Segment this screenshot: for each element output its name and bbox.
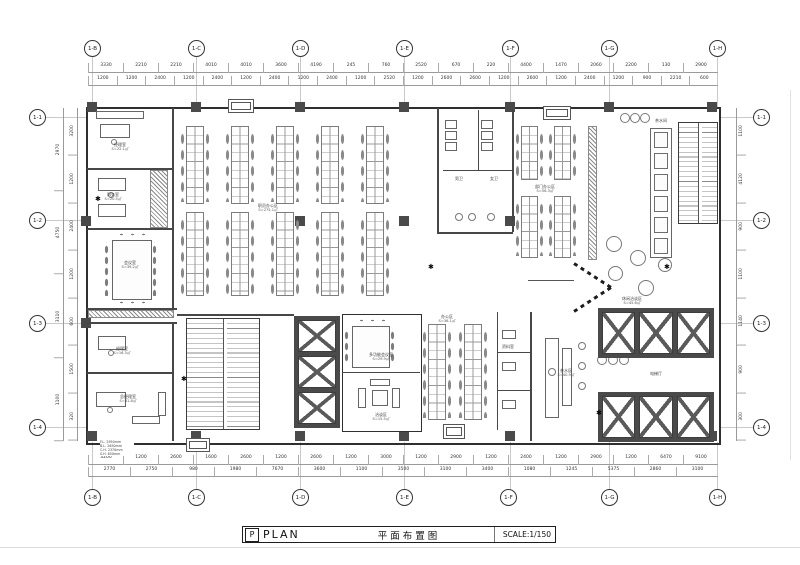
grid-line <box>510 442 511 489</box>
dim-value: 2520 <box>403 63 438 73</box>
dim-value: 2900 <box>578 455 613 465</box>
structural-column <box>505 216 515 226</box>
structural-column <box>505 102 515 112</box>
elevator-shaft <box>677 312 710 354</box>
bar-sink <box>548 368 556 376</box>
office-desk <box>100 124 130 138</box>
office-desk <box>502 400 516 409</box>
dim-value: 1200 <box>403 76 432 86</box>
structural-column <box>295 431 305 441</box>
dim-value: 2200 <box>613 63 648 73</box>
dim-value: 3500 <box>382 467 424 477</box>
dim-value: 600 <box>689 76 718 86</box>
dim-value: 2400 <box>145 76 174 86</box>
room-label-talk: 洽谈区S=15.5㎡ <box>373 412 390 422</box>
elevator-bank-right-top <box>598 308 714 358</box>
dim-chain-top-1: 3330221022104010401036004190245760252067… <box>88 63 718 73</box>
elevator-shaft <box>298 320 336 352</box>
wc-stall <box>445 142 457 151</box>
office-cabinet <box>96 111 144 119</box>
dim-value: 3100 <box>424 467 466 477</box>
room-name: 女卫 <box>490 176 498 181</box>
room-label-pantry: 茶水间 <box>655 118 667 123</box>
structural-column <box>87 431 97 441</box>
grid-bubble-bottom-g: 1-G <box>601 489 618 506</box>
meeting-chairs <box>354 318 386 323</box>
workstation-bench <box>321 126 339 204</box>
wc-sink <box>487 213 495 221</box>
dim-value: 900 <box>632 76 661 86</box>
room-area: S=40.9㎡ <box>558 373 575 378</box>
lounge-table <box>372 390 388 406</box>
grid-bubble-bottom-b: 1-B <box>84 489 101 506</box>
wc-stall <box>481 120 493 129</box>
workstation-bench <box>231 212 249 296</box>
wall-segment <box>497 352 530 353</box>
elevator-bank-right-bottom <box>598 392 714 442</box>
grid-line <box>92 442 93 489</box>
dim-chain-bottom-2: 2770275098019807670360011003500310034001… <box>88 467 718 477</box>
grid-bubble-right-1: 1-1 <box>753 109 770 126</box>
floor-plan-sheet: 1-B 1-C 1-D 1-E 1-F 1-G 1-H 1-B 1-C 1-D … <box>0 0 800 565</box>
workstation-bench <box>231 126 249 204</box>
grid-bubble-top-f: 1-F <box>502 40 519 57</box>
grid-line <box>46 117 86 118</box>
dim-value: 1200 <box>604 76 633 86</box>
room-area: S=20.5㎡ <box>105 197 122 202</box>
title-cn: 平面布置图 <box>378 528 441 542</box>
plant-icon: ✱ <box>596 410 602 417</box>
meeting-chairs <box>344 328 349 364</box>
dim-value: 2600 <box>432 76 461 86</box>
lounge-sofa <box>358 388 366 408</box>
dim-value: 2970 <box>54 108 63 191</box>
dim-value: 1200 <box>403 455 438 465</box>
dim-value: 900 <box>737 203 746 251</box>
bar-bench <box>588 126 597 260</box>
pantry-unit <box>654 153 668 169</box>
workstation-bench <box>554 126 571 180</box>
workstation-bench <box>428 324 446 420</box>
elevator-shaft <box>602 312 635 354</box>
dim-value: 2600 <box>158 455 193 465</box>
dim-value: 7670 <box>256 467 298 477</box>
wall-segment <box>437 232 513 234</box>
dim-value: 2600 <box>518 76 547 86</box>
dim-value: 2520 <box>374 76 403 86</box>
grid-line <box>404 442 405 489</box>
column-casing <box>228 99 254 113</box>
round-table <box>630 113 640 123</box>
dim-value: 2400 <box>203 76 232 86</box>
dim-chain-left-inner: 32001200240012006001500320 <box>68 108 78 441</box>
elevator-shaft <box>677 396 710 438</box>
room-name: 资料室 <box>502 344 514 349</box>
dim-value: 2400 <box>575 76 604 86</box>
office-sofa <box>158 392 166 416</box>
pantry-unit <box>654 217 668 233</box>
dim-value: 4750 <box>54 191 63 274</box>
dim-value: 1200 <box>288 76 317 86</box>
grid-bubble-left-2: 1-2 <box>29 212 46 229</box>
dim-value: 1200 <box>231 76 260 86</box>
sheet-edge <box>790 90 791 460</box>
dim-value: 1100 <box>737 251 746 299</box>
room-label-lounge: 休闲洽谈区S=45.6㎡ <box>622 296 642 306</box>
dim-value: 2400 <box>68 203 77 251</box>
dim-value: 4120 <box>737 156 746 204</box>
dim-value: 2060 <box>578 63 613 73</box>
dim-value: 130 <box>648 63 683 73</box>
round-table <box>630 250 646 266</box>
structural-column <box>399 102 409 112</box>
workstation-bench <box>554 196 571 258</box>
dim-value: 3600 <box>298 467 340 477</box>
dim-value: 4400 <box>508 63 543 73</box>
wc-sink <box>455 213 463 221</box>
dim-value: 220 <box>473 63 508 73</box>
round-table <box>606 236 622 252</box>
sheet-rule <box>0 547 800 548</box>
room-area: S=22.1㎡ <box>112 147 129 152</box>
dim-value: 1980 <box>214 467 256 477</box>
dim-value: 2750 <box>130 467 172 477</box>
pantry-unit <box>654 196 668 212</box>
room-area: S=16.3㎡ <box>114 351 131 356</box>
grid-bubble-top-h: 1-H <box>709 40 726 57</box>
office-desk <box>98 178 126 191</box>
elevator-shaft <box>298 392 336 424</box>
dim-value: 2400 <box>260 76 289 86</box>
wall-segment <box>172 108 174 308</box>
structural-column <box>707 102 717 112</box>
dim-value: 1200 <box>117 76 146 86</box>
pantry-unit <box>654 174 668 190</box>
dim-value: 980 <box>172 467 214 477</box>
grid-bubble-left-4: 1-4 <box>29 419 46 436</box>
structural-column <box>295 102 305 112</box>
grid-bubble-top-b: 1-B <box>84 40 101 57</box>
wc-stall <box>481 142 493 151</box>
dim-value: 1200 <box>346 76 375 86</box>
dim-value: 1100 <box>54 358 63 441</box>
room-name: 男卫 <box>455 176 463 181</box>
wall-segment <box>478 110 479 170</box>
workstation-bench <box>186 126 204 204</box>
room-label-open-office: 职员办公区S=275.1㎡ <box>258 203 278 213</box>
round-table <box>620 113 630 123</box>
office-desk <box>502 362 516 371</box>
office-desk <box>502 330 516 339</box>
elevator-bank-center <box>294 316 340 428</box>
dim-value: 9100 <box>683 455 718 465</box>
room-label-bar: 茶水区S=40.9㎡ <box>558 368 575 378</box>
dim-value: 900 <box>737 346 746 394</box>
room-label-office-mid: 办公区S=36.1㎡ <box>439 314 456 324</box>
dim-value: 1600 <box>193 455 228 465</box>
dim-value: 2400 <box>508 455 543 465</box>
plant-icon: ✱ <box>95 196 101 203</box>
dim-value: 1200 <box>489 76 518 86</box>
wall-segment <box>87 372 172 374</box>
round-table <box>640 113 650 123</box>
dim-value: 1200 <box>123 455 158 465</box>
elevator-shaft <box>602 396 635 438</box>
stair-core <box>186 318 260 430</box>
plant-icon: ✱ <box>181 376 187 383</box>
workstation-bench <box>276 212 294 296</box>
plan-notes: F.L. 2950mmB.L. 2650mmC.H. 2370mmS.H. 65… <box>100 440 134 456</box>
title-block: P PLAN 平面布置图 SCALE:1/150 <box>242 526 556 543</box>
dim-value: 3600 <box>263 63 298 73</box>
wall-segment <box>443 170 512 171</box>
room-label-lobby: 电梯厅 <box>650 371 662 376</box>
round-table <box>638 280 654 296</box>
room-label-meeting-mid: 多功能会议室S=29.9㎡ <box>369 352 393 362</box>
grid-bubble-left-1: 1-1 <box>29 109 46 126</box>
wc-sink <box>468 213 476 221</box>
conference-chairs <box>104 242 109 296</box>
dim-value: 2900 <box>438 455 473 465</box>
structural-column <box>399 216 409 226</box>
dim-value: 4010 <box>228 63 263 73</box>
room-label-conference: 会议室S=39.2㎡ <box>122 260 139 270</box>
dim-value: 1200 <box>543 455 578 465</box>
grid-bubble-bottom-c: 1-C <box>188 489 205 506</box>
dim-value: 1245 <box>550 467 592 477</box>
grid-bubble-top-d: 1-D <box>292 40 309 57</box>
dim-value: 2210 <box>123 63 158 73</box>
wall-segment <box>497 390 530 391</box>
elevator-shaft <box>639 312 672 354</box>
dim-value: 2900 <box>683 63 718 73</box>
room-label-wc-m: 男卫 <box>455 176 463 181</box>
wc-stall <box>481 131 493 140</box>
dim-value: 1200 <box>68 156 77 204</box>
dim-value: 2600 <box>460 76 489 86</box>
wc-stall <box>445 120 457 129</box>
pantry-equipment <box>650 128 672 258</box>
grid-bubble-bottom-h: 1-H <box>709 489 726 506</box>
title-mark: P <box>245 528 259 542</box>
dim-value: 2600 <box>298 455 333 465</box>
dim-value: 1100 <box>340 467 382 477</box>
column-casing <box>543 106 571 120</box>
dim-value: 2770 <box>88 467 130 477</box>
dim-value: 4190 <box>298 63 333 73</box>
wall-segment <box>497 312 498 430</box>
room-area: S=15.5㎡ <box>373 417 390 422</box>
workstation-bench <box>321 212 339 296</box>
plant-icon: ✱ <box>664 264 670 271</box>
dim-value: 1200 <box>68 251 77 299</box>
dim-chain-right: 1100412090011001140900300 <box>736 108 746 441</box>
wc-stall <box>445 131 457 140</box>
dim-value: 1200 <box>613 455 648 465</box>
dim-value: 1470 <box>543 63 578 73</box>
grid-bubble-bottom-d: 1-D <box>292 489 309 506</box>
hatched-partition <box>88 310 174 318</box>
title-scale: SCALE:1/150 <box>494 527 555 542</box>
structural-column <box>81 216 91 226</box>
room-area: S=29.9㎡ <box>369 357 393 362</box>
grid-line <box>609 442 610 489</box>
room-name: 电梯厅 <box>650 371 662 376</box>
room-area: S=31.8㎡ <box>120 399 137 404</box>
stair-core-topright <box>678 122 718 224</box>
grid-bubble-bottom-e: 1-E <box>396 489 413 506</box>
dim-chain-top-2: 1200120024001200240012002400120024001200… <box>88 76 718 86</box>
elevator-shaft <box>298 356 336 388</box>
workstation-bench <box>186 212 204 296</box>
dim-value: 1500 <box>68 346 77 394</box>
room-label-office-gm: 总经理室S=31.8㎡ <box>120 394 137 404</box>
plant-icon: ✱ <box>428 264 434 271</box>
dim-value: 1200 <box>88 76 117 86</box>
dim-chain-bottom-1: 3200120026001600260012002600120030001200… <box>88 455 718 465</box>
room-label-office-r: 部门办公区S=56.3㎡ <box>535 184 555 194</box>
grid-line <box>717 442 718 489</box>
grid-bubble-top-e: 1-E <box>396 40 413 57</box>
structural-column <box>604 102 614 112</box>
wall-segment <box>530 312 532 441</box>
lounge-sofa <box>392 388 400 408</box>
structural-column <box>399 431 409 441</box>
hatched-partition <box>150 170 168 228</box>
room-label-office-tl: 经理室S=22.1㎡ <box>112 142 129 152</box>
room-label-wc-f: 女卫 <box>490 176 498 181</box>
room-area: S=275.1㎡ <box>258 208 278 213</box>
wall-segment <box>437 108 439 232</box>
grid-bubble-right-4: 1-4 <box>753 419 770 436</box>
dim-value: 3330 <box>88 63 123 73</box>
lounge-sofa <box>370 379 390 386</box>
column-casing <box>443 424 465 439</box>
room-area: S=39.2㎡ <box>122 265 139 270</box>
room-label-office-bl: 经理室S=16.3㎡ <box>114 346 131 356</box>
office-sofa <box>132 416 160 424</box>
dim-value: 6470 <box>648 455 683 465</box>
round-table <box>608 266 623 281</box>
workstation-bench <box>521 196 538 258</box>
wall-segment <box>177 314 294 316</box>
conference-chairs <box>152 242 157 296</box>
room-area: S=56.3㎡ <box>535 189 555 194</box>
pantry-unit <box>654 132 668 148</box>
workstation-bench <box>464 324 482 420</box>
dim-value: 4010 <box>193 63 228 73</box>
dim-value: 2860 <box>634 467 676 477</box>
dim-value: 1200 <box>546 76 575 86</box>
grid-bubble-right-2: 1-2 <box>753 212 770 229</box>
dim-value: 1080 <box>508 467 550 477</box>
grid-bubble-top-g: 1-G <box>601 40 618 57</box>
grid-line <box>46 220 86 221</box>
dim-value: 320 <box>68 393 77 441</box>
office-chair <box>107 407 113 413</box>
workstation-bench <box>521 126 538 180</box>
room-name: 茶水间 <box>655 118 667 123</box>
dim-value: 670 <box>438 63 473 73</box>
structural-column <box>505 431 515 441</box>
conference-chairs <box>114 232 148 237</box>
dim-value: 3110 <box>54 275 63 358</box>
dim-value: 3400 <box>466 467 508 477</box>
grid-bubble-right-3: 1-3 <box>753 315 770 332</box>
dim-value: 245 <box>333 63 368 73</box>
title-en: PLAN <box>263 528 300 541</box>
dim-value: 1200 <box>333 455 368 465</box>
dim-value: 2400 <box>317 76 346 86</box>
workstation-bench <box>366 126 384 204</box>
grid-line <box>300 442 301 489</box>
dim-value: 2600 <box>228 455 263 465</box>
room-area: S=45.6㎡ <box>622 301 642 306</box>
dim-value: 3200 <box>68 108 77 156</box>
pantry-unit <box>654 238 668 254</box>
grid-bubble-top-c: 1-C <box>188 40 205 57</box>
grid-line <box>46 323 86 324</box>
dim-value: 1140 <box>737 298 746 346</box>
grid-bubble-bottom-f: 1-F <box>500 489 517 506</box>
wall-segment <box>512 108 514 232</box>
structural-column <box>191 102 201 112</box>
bar-stool <box>578 382 586 390</box>
dim-chain-left-outer: 2970475031101100 <box>54 108 64 441</box>
dim-value: 3200 <box>88 455 123 465</box>
wall-segment <box>172 322 174 441</box>
wall-segment <box>87 228 172 230</box>
dim-value: 1100 <box>737 108 746 156</box>
dim-value: 300 <box>737 393 746 441</box>
dim-value: 2210 <box>158 63 193 73</box>
dim-value: 5375 <box>592 467 634 477</box>
grid-bubble-left-3: 1-3 <box>29 315 46 332</box>
dim-value: 1200 <box>473 455 508 465</box>
grid-line <box>46 427 86 428</box>
dim-value: 760 <box>368 63 403 73</box>
conference-chairs <box>114 300 148 305</box>
room-area: S=36.1㎡ <box>439 319 456 324</box>
dim-value: S.H. 650mm <box>100 452 134 456</box>
room-label-archive: 资料室 <box>502 344 514 349</box>
dim-value: 3000 <box>368 455 403 465</box>
dim-value: 1200 <box>263 455 298 465</box>
workstation-bench <box>276 126 294 204</box>
workstation-bench <box>366 212 384 296</box>
dim-value: 2210 <box>661 76 690 86</box>
partition-line <box>528 280 574 281</box>
wall-segment <box>342 372 420 373</box>
wall-segment <box>87 322 177 324</box>
dim-value: 600 <box>68 298 77 346</box>
room-label-office-tl2: 财务室S=20.5㎡ <box>105 192 122 202</box>
office-desk <box>98 204 126 217</box>
elevator-shaft <box>639 396 672 438</box>
bar-stool <box>578 342 586 350</box>
dim-value: 1200 <box>174 76 203 86</box>
bar-stool <box>578 362 586 370</box>
dim-value: 3100 <box>676 467 718 477</box>
column-casing <box>186 438 210 452</box>
